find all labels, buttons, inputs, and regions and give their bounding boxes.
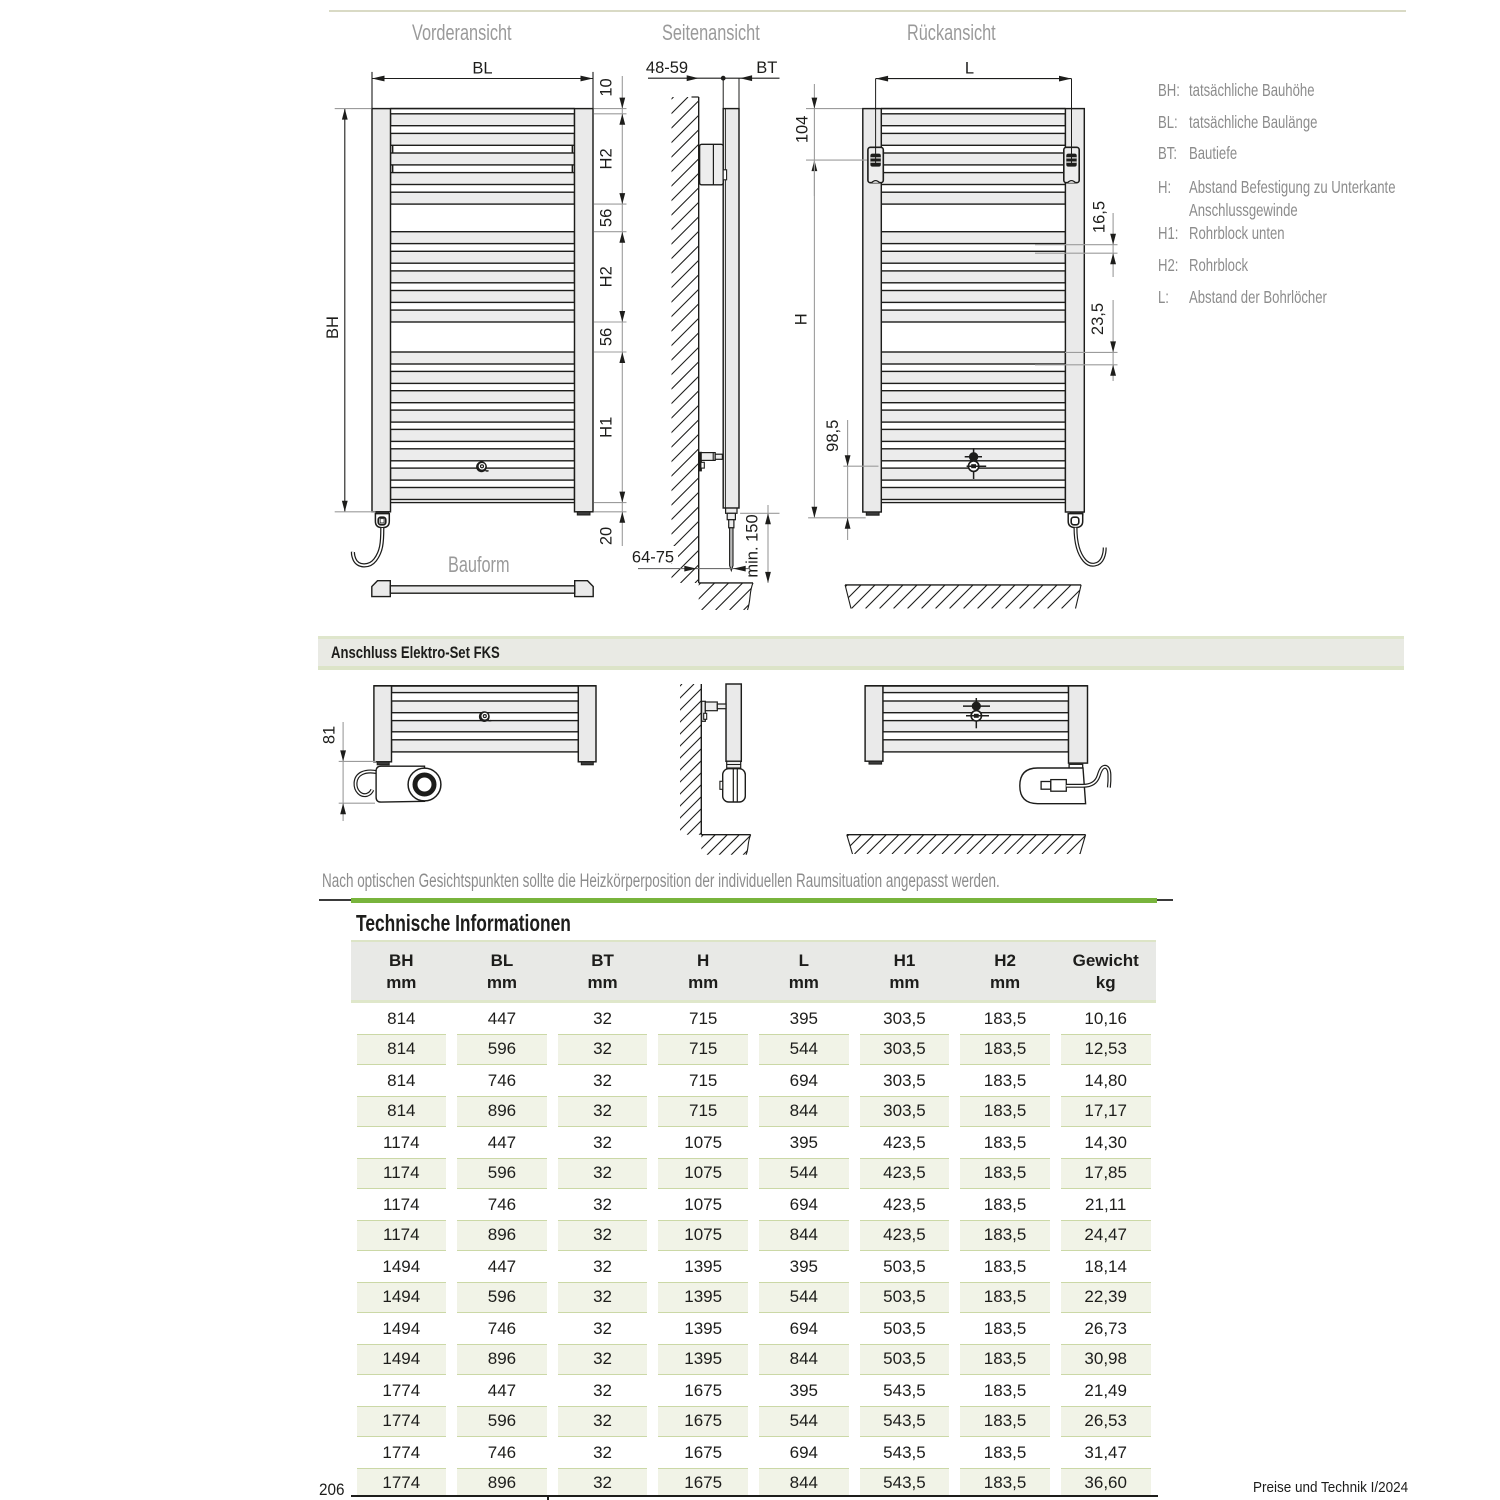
svg-text:23,5: 23,5 bbox=[1089, 303, 1107, 335]
svg-text:10: 10 bbox=[598, 78, 616, 96]
svg-text:BL: BL bbox=[472, 60, 492, 78]
svg-text:81: 81 bbox=[320, 726, 338, 744]
svg-text:98,5: 98,5 bbox=[824, 420, 842, 452]
svg-text:56: 56 bbox=[598, 209, 616, 227]
svg-text:BH: BH bbox=[324, 316, 342, 339]
svg-text:L: L bbox=[965, 60, 974, 78]
svg-text:104: 104 bbox=[794, 116, 812, 144]
svg-text:20: 20 bbox=[598, 527, 616, 545]
svg-text:64-75: 64-75 bbox=[632, 549, 674, 567]
svg-text:H: H bbox=[793, 313, 811, 325]
svg-text:H2: H2 bbox=[598, 148, 616, 169]
svg-text:H2: H2 bbox=[598, 266, 616, 287]
svg-text:BT: BT bbox=[756, 59, 777, 77]
svg-text:16,5: 16,5 bbox=[1091, 201, 1109, 233]
svg-text:H1: H1 bbox=[598, 417, 616, 438]
svg-text:48-59: 48-59 bbox=[646, 59, 688, 77]
svg-text:56: 56 bbox=[598, 328, 616, 346]
